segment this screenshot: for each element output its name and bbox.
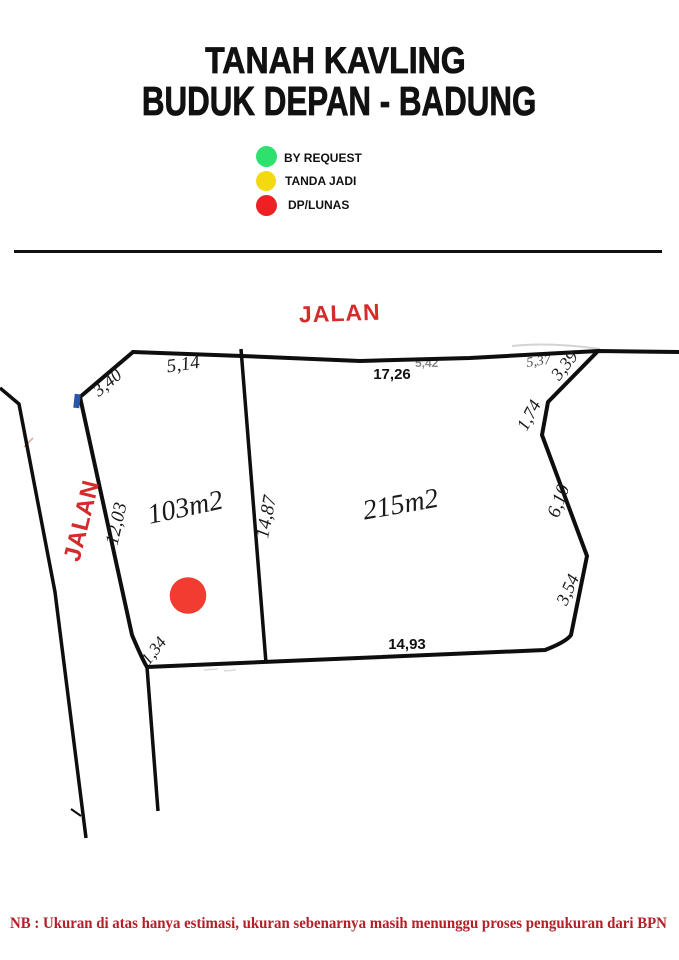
svg-text:5,14: 5,14	[165, 352, 201, 377]
svg-text:JALAN: JALAN	[298, 299, 381, 328]
svg-text:14,87: 14,87	[252, 492, 281, 539]
svg-text:1,34: 1,34	[137, 633, 171, 669]
svg-text:JALAN: JALAN	[59, 477, 105, 564]
svg-text:17,26: 17,26	[373, 366, 411, 383]
svg-text:103m2: 103m2	[145, 485, 226, 531]
svg-text:215m2: 215m2	[360, 483, 440, 527]
svg-text:14,93: 14,93	[388, 636, 426, 653]
svg-text:3,40: 3,40	[88, 365, 126, 401]
svg-text:1,74: 1,74	[512, 397, 544, 434]
